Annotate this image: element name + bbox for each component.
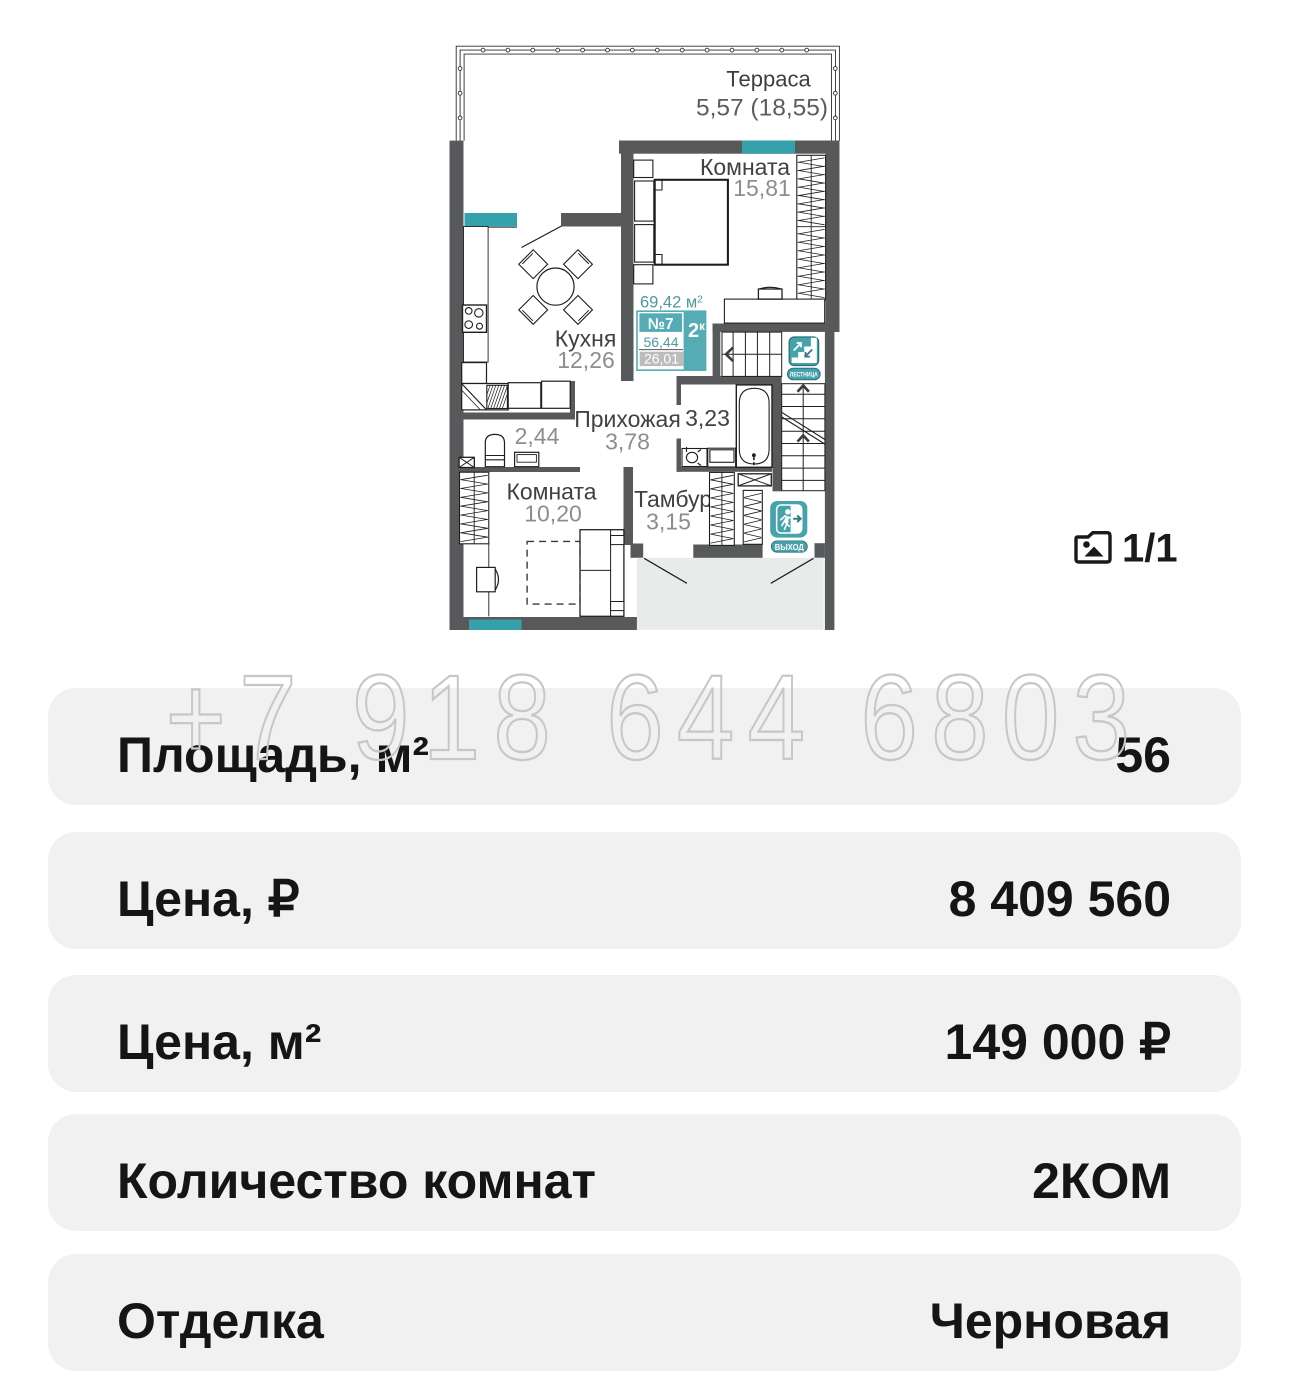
svg-text:+7 918 644 6803: +7 918 644 6803	[166, 649, 1144, 785]
